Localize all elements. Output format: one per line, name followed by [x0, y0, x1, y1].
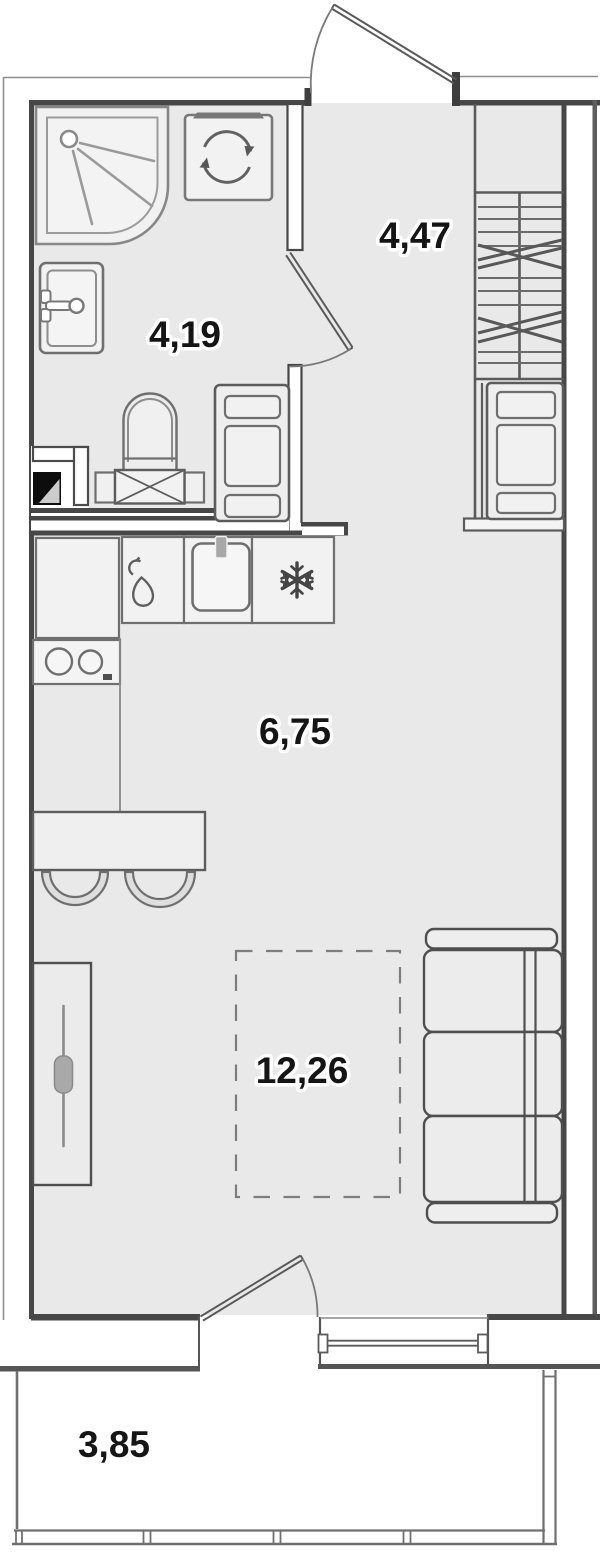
svg-text:3,85: 3,85: [78, 1424, 150, 1465]
svg-text:4,19: 4,19: [149, 314, 221, 355]
svg-text:6,75: 6,75: [259, 711, 331, 752]
svg-text:4,47: 4,47: [379, 215, 451, 256]
svg-text:12,26: 12,26: [256, 1050, 349, 1091]
